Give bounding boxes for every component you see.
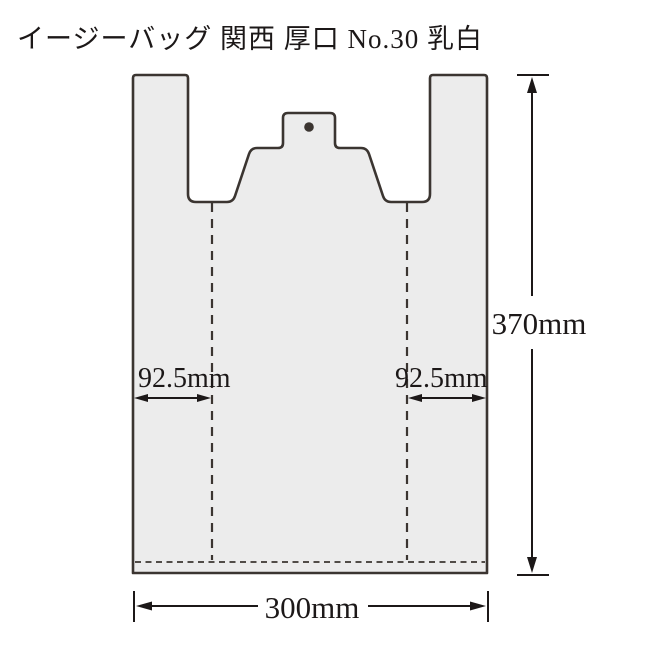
bag-dimension-diagram: 370mm 300mm 92.5mm 92.5mm — [0, 0, 650, 650]
height-dim-arrow-up-icon — [527, 77, 537, 93]
height-dim-arrow-down-icon — [527, 557, 537, 573]
left-gusset-label: 92.5mm — [138, 363, 231, 394]
right-gusset-label: 92.5mm — [395, 363, 488, 394]
width-dimension: 300mm — [134, 590, 488, 625]
hang-hole-icon — [304, 122, 314, 132]
width-dim-arrow-left-icon — [136, 602, 152, 611]
height-dimension-label: 370mm — [492, 306, 587, 341]
bag-outline — [133, 75, 487, 573]
width-dimension-label: 300mm — [265, 590, 360, 625]
width-dim-arrow-right-icon — [470, 602, 486, 611]
height-dimension: 370mm — [492, 75, 587, 575]
